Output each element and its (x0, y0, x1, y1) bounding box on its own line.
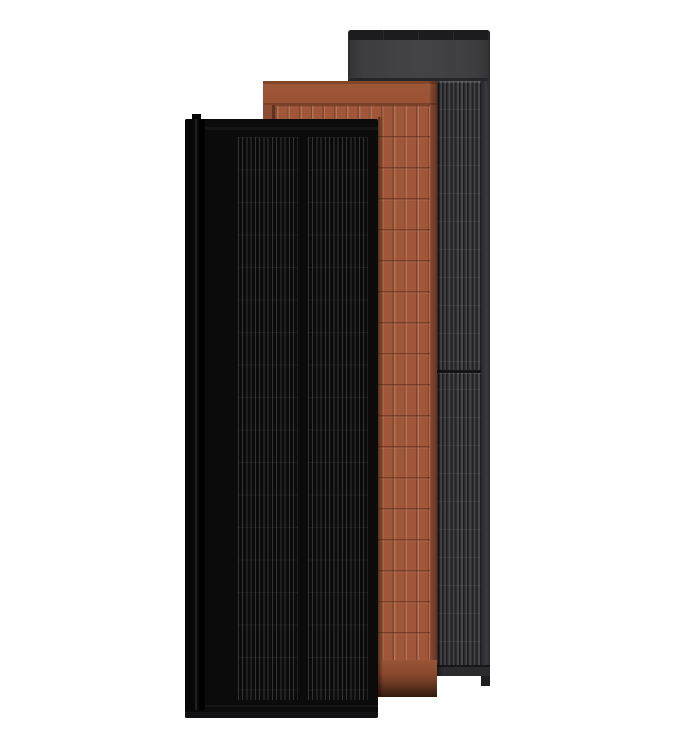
shadow-cast-by-black-panel (378, 117, 383, 697)
shadow-cast-by-terracotta-panel (437, 81, 442, 676)
solar-panel-matte-black (185, 119, 378, 718)
black-panel-cell-stripes-left-column (238, 137, 298, 700)
black-panel-left-flange (185, 119, 205, 718)
gray-panel-header-band (350, 40, 488, 78)
terracotta-panel-right-edge (430, 81, 437, 697)
terracotta-panel-header-divider (263, 103, 437, 105)
gray-panel-bottom-tab (481, 676, 490, 686)
gray-panel-right-frame (481, 81, 490, 665)
terracotta-panel-header-band (263, 84, 437, 103)
black-panel-cell-stripes-right-column (308, 137, 368, 700)
black-panel-bottom-frame (185, 710, 378, 718)
black-panel-bottom-lip (205, 705, 378, 707)
product-stage (0, 0, 684, 748)
gray-panel-top-edge-strip (348, 30, 490, 40)
black-panel-top-lip (205, 127, 378, 130)
